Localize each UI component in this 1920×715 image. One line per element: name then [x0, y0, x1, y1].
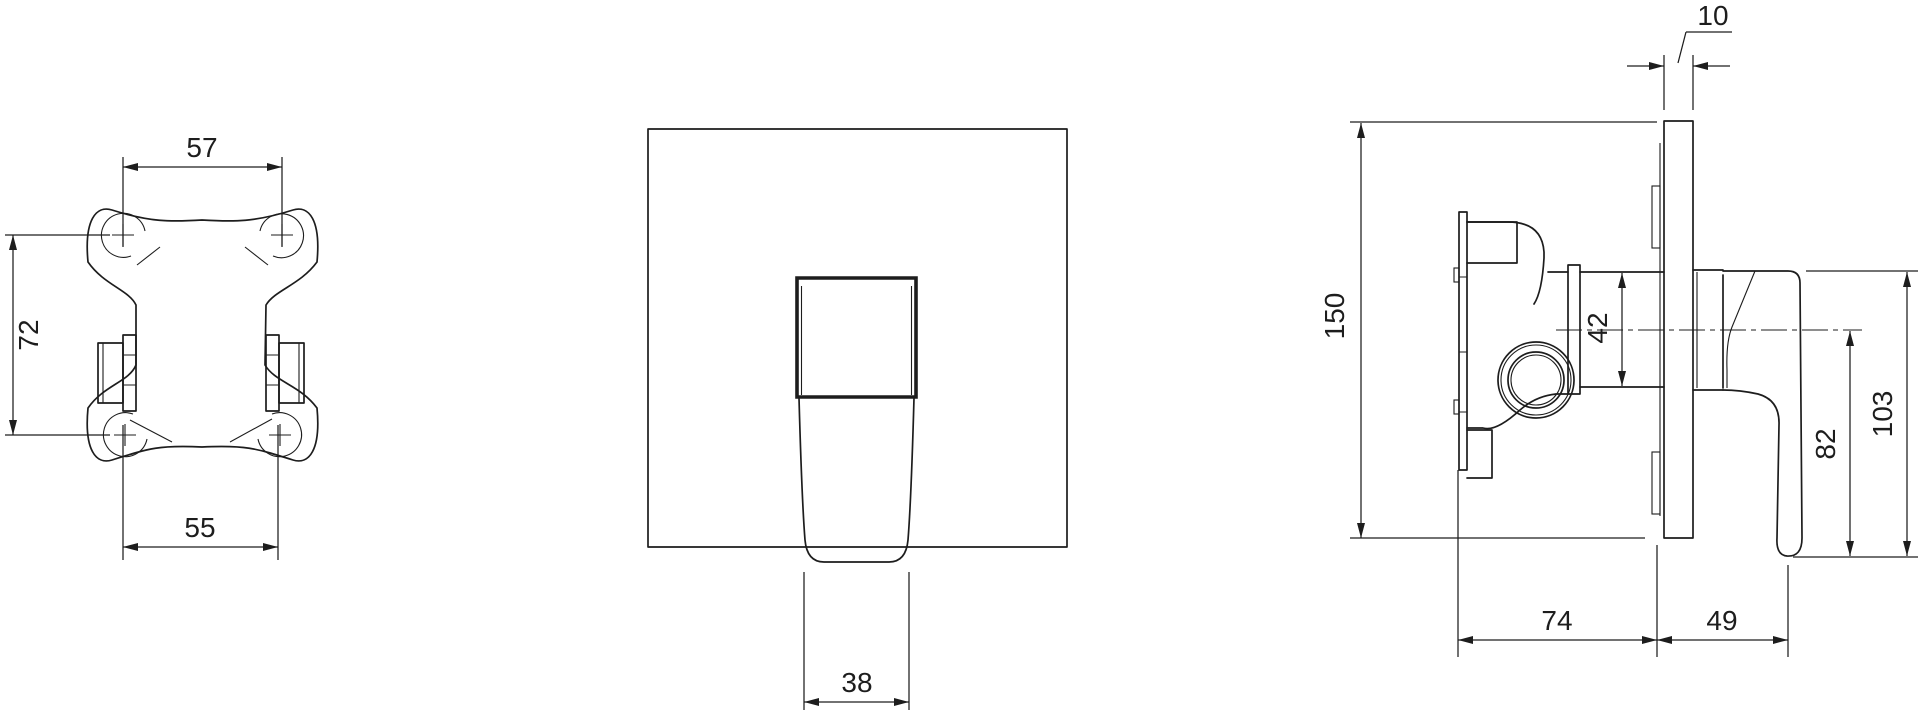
dim-38-label: 38 — [841, 667, 872, 698]
screw-cross-bottom-left — [114, 424, 136, 446]
dim-57-label: 57 — [186, 132, 217, 163]
dim-74-label: 74 — [1541, 605, 1572, 636]
inlet-port-circles — [1498, 342, 1574, 418]
lever-grip-inner-edges — [802, 286, 912, 395]
dimension-recess-depth: 74 — [1458, 470, 1657, 657]
lever-grip-front — [797, 278, 916, 397]
bracket-fold-line-bottom-left — [130, 420, 172, 442]
dim-10-label: 10 — [1697, 0, 1728, 31]
dim-150-label: 150 — [1319, 293, 1350, 340]
dim-42-label: 42 — [1582, 312, 1613, 343]
dimension-lever-height: 103 — [1806, 271, 1918, 556]
bracket-fold-line-top-right — [245, 247, 268, 265]
dim-49-label: 49 — [1706, 605, 1737, 636]
bracket-fold-line-top-left — [137, 247, 160, 265]
dimension-plate-thickness: 10 — [1627, 0, 1732, 110]
dim-55-label: 55 — [184, 512, 215, 543]
lever-lower-front — [799, 398, 914, 562]
dimension-axis-to-lever-tip: 82 — [1793, 331, 1918, 557]
dimension-vertical-hole-spacing: 72 — [5, 235, 110, 435]
side-view: 10 150 42 82 103 — [1319, 0, 1918, 657]
dim-103-label: 103 — [1867, 391, 1898, 438]
dimension-bottom-hole-spacing: 55 — [123, 425, 278, 560]
bracket-outline — [87, 209, 318, 461]
wall-plate-front — [648, 129, 1067, 547]
back-view: 57 72 55 — [5, 132, 318, 560]
shower-mixer-dimension-drawing: 57 72 55 38 — [0, 0, 1920, 715]
dim-82-label: 82 — [1810, 428, 1841, 459]
technical-drawing-page: 57 72 55 38 — [0, 0, 1920, 715]
dimension-top-hole-spacing: 57 — [123, 132, 282, 247]
bracket-fold-line-bottom-right — [230, 419, 272, 442]
dimension-projection: 49 — [1657, 565, 1788, 657]
dimension-lever-width: 38 — [804, 572, 909, 710]
mounting-strip-edge — [1454, 212, 1467, 470]
front-view: 38 — [648, 129, 1067, 710]
screw-cross-bottom-right — [269, 424, 291, 446]
valve-body — [1467, 222, 1664, 478]
lever-side-profile — [1693, 270, 1802, 556]
dim-72-label: 72 — [13, 319, 44, 350]
